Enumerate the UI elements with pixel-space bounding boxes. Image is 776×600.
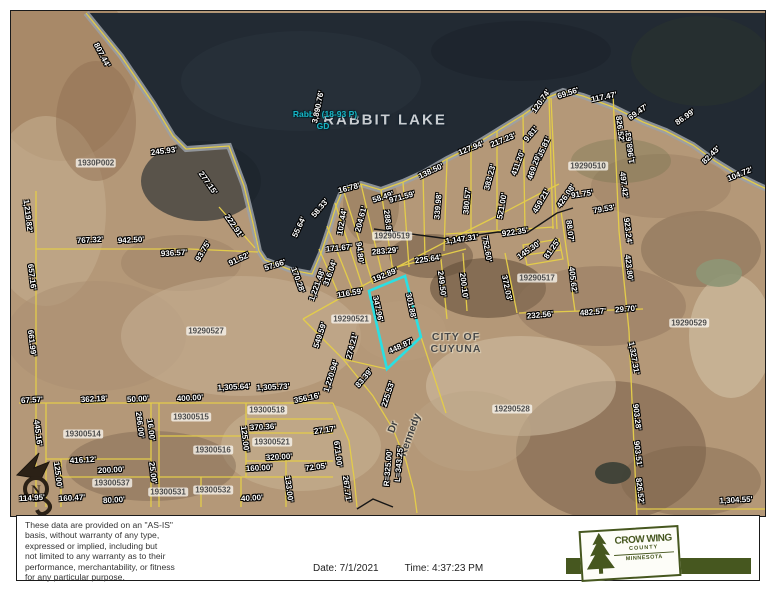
date-label: Date: 7/1/2021 (313, 563, 379, 574)
time-label: Time: 4:37:23 PM (405, 563, 484, 574)
pond (696, 259, 742, 287)
county-logo: CROW WING COUNTY MINNESOTA (579, 525, 682, 582)
datetime-row: Date: 7/1/2021Time: 4:37:23 PM (313, 563, 509, 574)
disclaimer-text: These data are provided on an "AS-IS" ba… (25, 520, 175, 582)
info-panel: These data are provided on an "AS-IS" ba… (16, 515, 760, 581)
pond (595, 462, 631, 484)
gis-map-page: N RABBIT LAKE Rabbit (18-93 P) GD CITY O… (0, 0, 776, 600)
svg-text:N: N (31, 482, 41, 497)
north-arrow-icon: N (17, 453, 50, 514)
aerial-imagery: N (11, 11, 765, 516)
map-canvas[interactable]: N RABBIT LAKE Rabbit (18-93 P) GD CITY O… (10, 10, 766, 517)
